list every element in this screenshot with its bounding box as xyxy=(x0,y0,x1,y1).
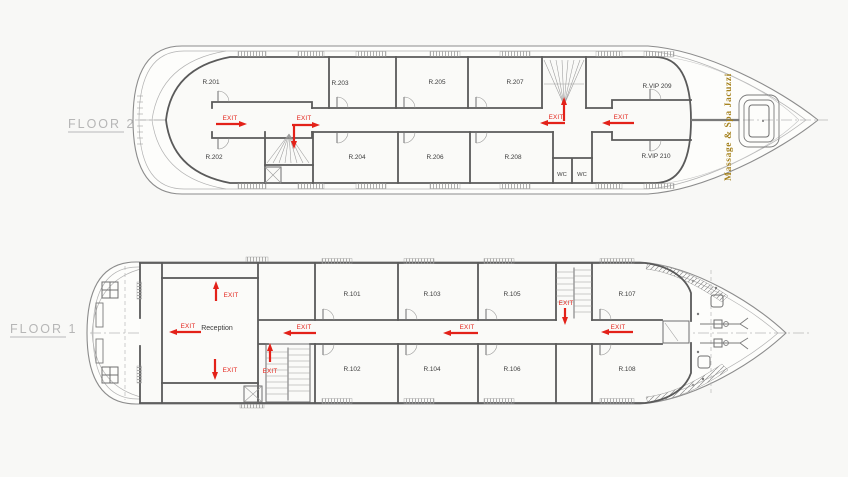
room-label-r206: R.206 xyxy=(426,154,443,161)
svg-text:EXIT: EXIT xyxy=(549,114,564,121)
floor2-title: FLOOR 2 xyxy=(68,117,136,131)
room-label-r105: R.105 xyxy=(503,291,520,298)
room-label-r107: R.107 xyxy=(618,291,635,298)
wc-label-1: WC xyxy=(557,172,567,178)
room-label-r103: R.103 xyxy=(423,291,440,298)
deck-plan: Massage & Spa Jacuzzi R.201 R.202 R.203 … xyxy=(0,0,848,477)
svg-text:EXIT: EXIT xyxy=(297,115,312,122)
room-label-r108: R.108 xyxy=(618,366,635,373)
room-label-r202: R.202 xyxy=(205,154,222,161)
room-label-r102: R.102 xyxy=(343,366,360,373)
svg-text:EXIT: EXIT xyxy=(181,323,196,330)
room-label-r201: R.201 xyxy=(202,79,219,86)
room-label-r106: R.106 xyxy=(503,366,520,373)
svg-text:EXIT: EXIT xyxy=(263,368,278,375)
floor1-title: FLOOR 1 xyxy=(10,322,78,336)
svg-text:EXIT: EXIT xyxy=(297,324,312,331)
room-label-r208: R.208 xyxy=(504,154,521,161)
wc-label-2: WC xyxy=(577,172,587,178)
room-label-r101: R.101 xyxy=(343,291,360,298)
svg-text:EXIT: EXIT xyxy=(223,367,238,374)
svg-text:EXIT: EXIT xyxy=(614,114,629,121)
reception-label: Reception xyxy=(201,325,233,332)
room-label-r205: R.205 xyxy=(428,79,445,86)
svg-text:EXIT: EXIT xyxy=(611,324,626,331)
svg-text:EXIT: EXIT xyxy=(223,115,238,122)
svg-text:EXIT: EXIT xyxy=(460,324,475,331)
ship-deck-plans: Massage & Spa Jacuzzi R.201 R.202 R.203 … xyxy=(0,0,848,477)
room-label-r207: R.207 xyxy=(506,79,523,86)
floor1-plan: Reception R.101 R.103 R.105 R.107 R.102 … xyxy=(87,257,812,408)
svg-text:EXIT: EXIT xyxy=(224,292,239,299)
room-label-rvip209: R.VIP 209 xyxy=(642,83,671,90)
room-label-r203: R.203 xyxy=(331,80,348,87)
room-label-r204: R.204 xyxy=(348,154,365,161)
svg-text:EXIT: EXIT xyxy=(559,300,574,307)
room-label-rvip210: R.VIP 210 xyxy=(641,153,670,160)
room-label-r104: R.104 xyxy=(423,366,440,373)
floor2-plan: Massage & Spa Jacuzzi R.201 R.202 R.203 … xyxy=(133,46,828,194)
spa-label: Massage & Spa Jacuzzi xyxy=(724,73,734,181)
